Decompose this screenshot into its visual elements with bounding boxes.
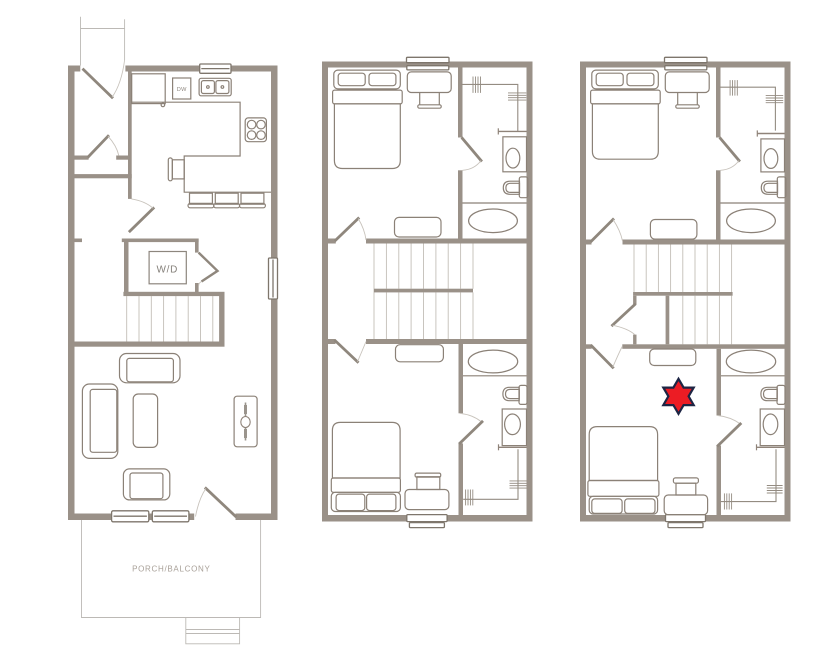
svg-text:DW: DW [177,87,187,93]
svg-text:PORCH/BALCONY: PORCH/BALCONY [132,565,210,574]
svg-text:W/D: W/D [157,264,179,275]
